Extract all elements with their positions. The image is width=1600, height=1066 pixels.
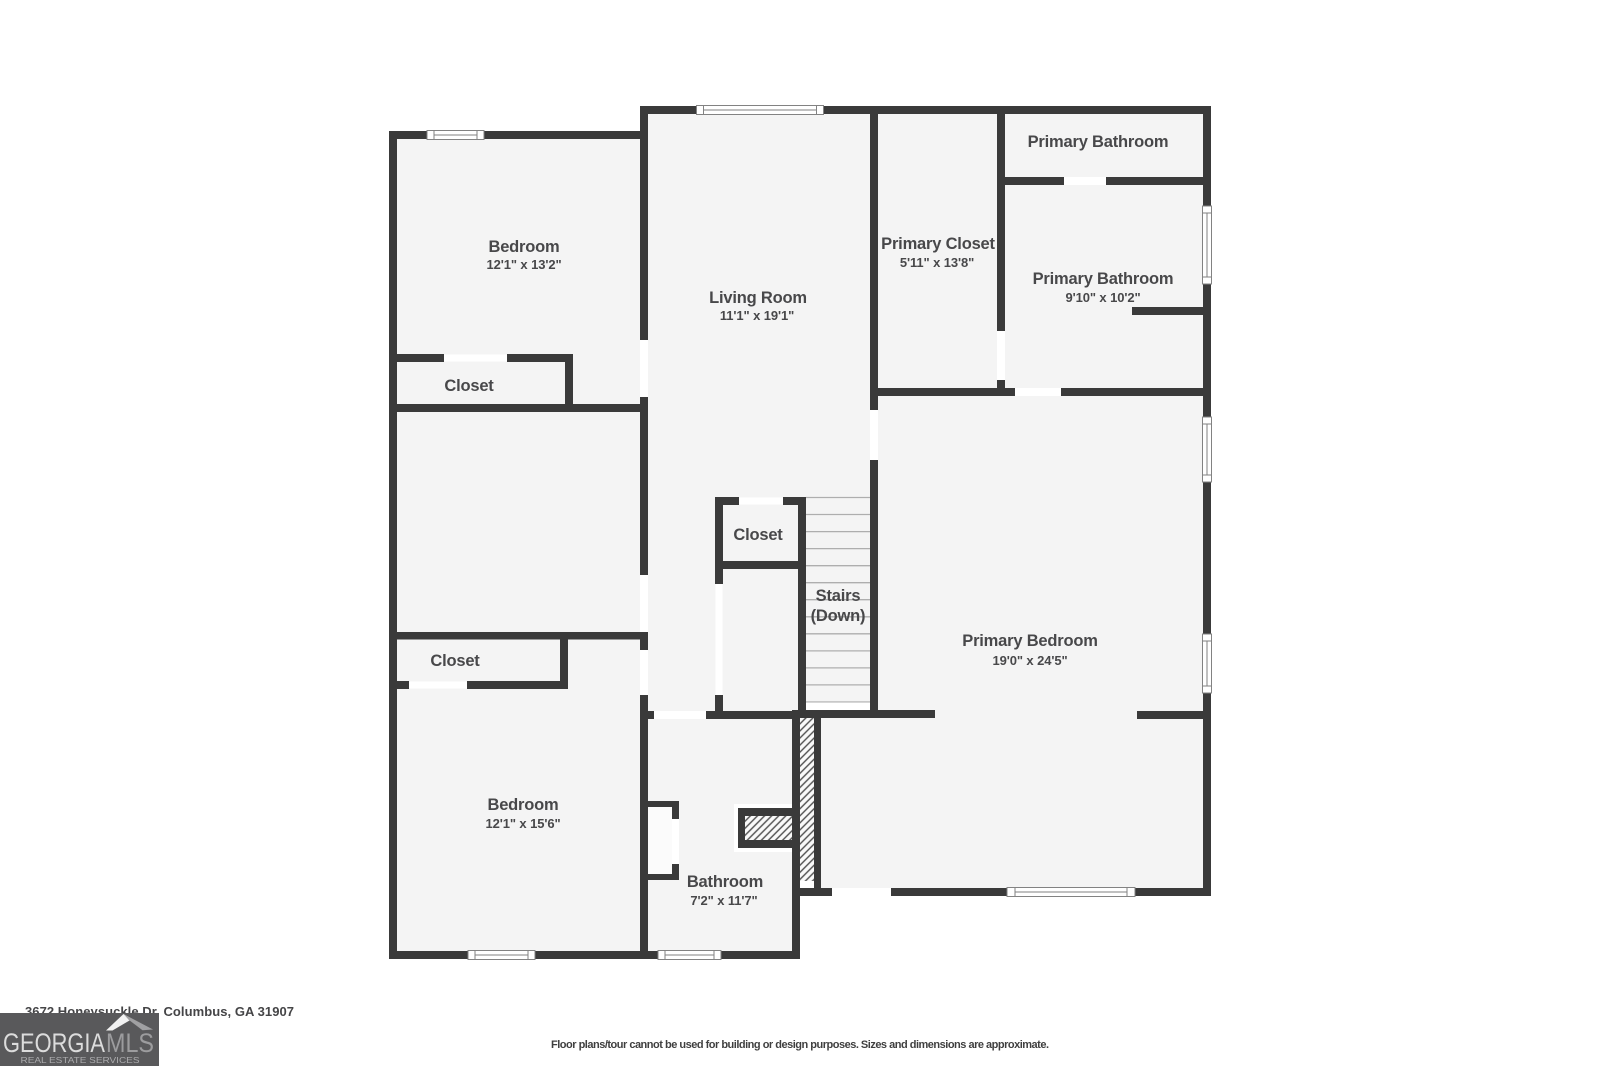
svg-text:Closet: Closet [430,652,480,670]
svg-text:MLS: MLS [106,1028,154,1058]
svg-text:Stairs: Stairs [816,587,861,605]
svg-text:11'1" x 19'1": 11'1" x 19'1" [720,308,794,323]
svg-text:GEORGIA: GEORGIA [3,1028,105,1058]
svg-text:9'10" x 10'2": 9'10" x 10'2" [1065,290,1140,305]
svg-text:12'1" x 13'2": 12'1" x 13'2" [486,257,561,272]
svg-text:19'0" x 24'5": 19'0" x 24'5" [992,653,1067,668]
svg-text:REAL ESTATE SERVICES: REAL ESTATE SERVICES [21,1056,140,1065]
svg-text:Primary Bedroom: Primary Bedroom [962,632,1097,650]
svg-text:(Down): (Down) [811,607,866,625]
svg-text:Bathroom: Bathroom [687,873,763,891]
svg-text:Closet: Closet [444,377,494,395]
svg-text:Primary Closet: Primary Closet [881,235,995,253]
svg-text:7'2" x 11'7": 7'2" x 11'7" [690,893,757,908]
svg-text:Floor plans/tour cannot be use: Floor plans/tour cannot be used for buil… [551,1039,1049,1051]
svg-text:Primary Bathroom: Primary Bathroom [1033,270,1174,288]
svg-text:Bedroom: Bedroom [488,238,559,256]
svg-text:Primary Bathroom: Primary Bathroom [1028,133,1169,151]
svg-text:Living Room: Living Room [709,289,807,307]
svg-text:5'11" x 13'8": 5'11" x 13'8" [900,255,974,270]
svg-text:Closet: Closet [733,526,783,544]
svg-text:Bedroom: Bedroom [487,796,558,814]
svg-text:12'1" x 15'6": 12'1" x 15'6" [485,816,560,831]
